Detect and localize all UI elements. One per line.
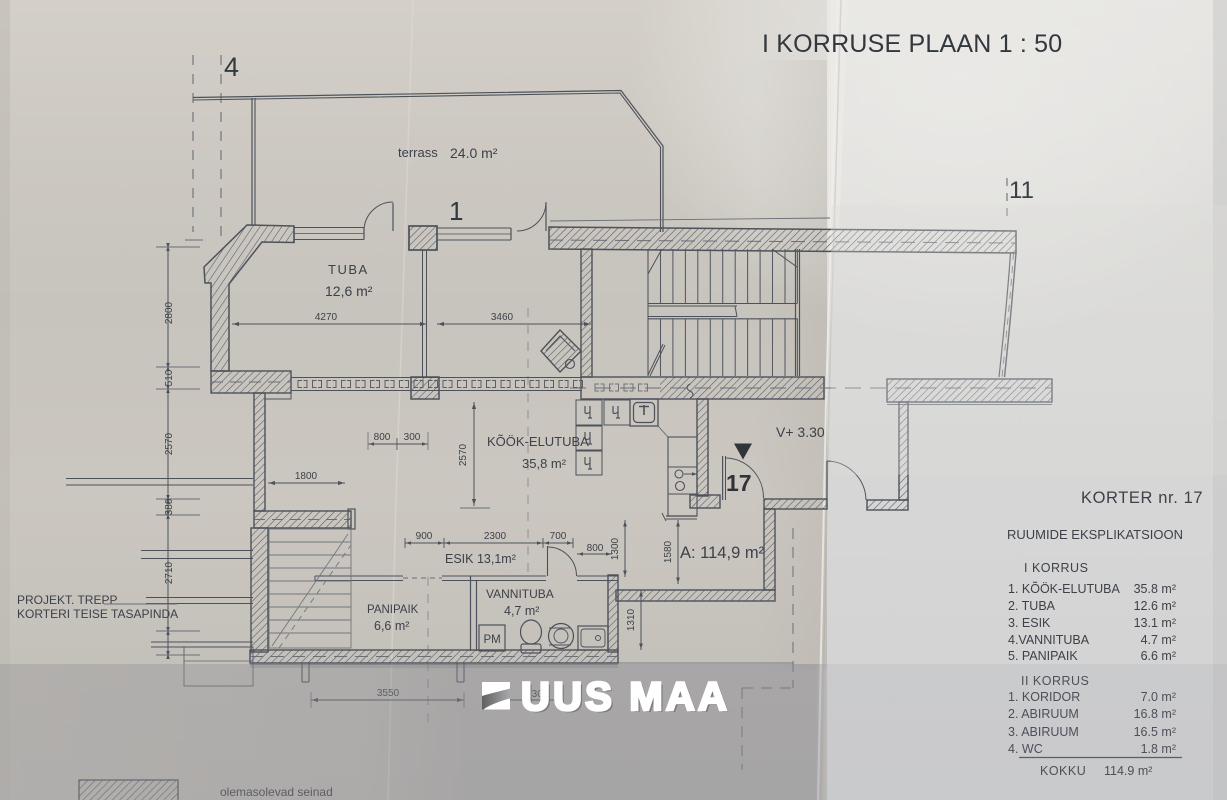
svg-text:A: 114,9 m²: A: 114,9 m² xyxy=(680,544,765,562)
svg-text:2. TUBA: 2. TUBA xyxy=(1008,599,1056,613)
svg-text:2710: 2710 xyxy=(164,561,175,584)
svg-text:380: 380 xyxy=(164,498,175,515)
svg-text:4: 4 xyxy=(224,52,239,82)
svg-text:PM: PM xyxy=(484,634,501,646)
svg-text:I KORRUS: I KORRUS xyxy=(1024,561,1088,575)
svg-text:V+ 3.30: V+ 3.30 xyxy=(776,424,825,440)
svg-text:1300: 1300 xyxy=(610,537,621,560)
svg-text:UUS MAA: UUS MAA xyxy=(521,675,730,719)
svg-text:35.8 m²: 35.8 m² xyxy=(1134,582,1176,596)
svg-text:800: 800 xyxy=(587,543,604,554)
svg-text:12.6 m²: 12.6 m² xyxy=(1134,599,1176,613)
svg-text:3460: 3460 xyxy=(491,312,514,323)
svg-text:2800: 2800 xyxy=(164,301,175,324)
svg-text:terrass: terrass xyxy=(398,145,438,160)
svg-text:VANNITUBA: VANNITUBA xyxy=(486,587,554,601)
svg-text:1800: 1800 xyxy=(295,471,318,482)
svg-text:4,7 m²: 4,7 m² xyxy=(504,604,539,618)
svg-text:RUUMIDE EKSPLIKATSIOON: RUUMIDE EKSPLIKATSIOON xyxy=(1007,527,1183,542)
svg-text:4.7 m²: 4.7 m² xyxy=(1141,633,1176,647)
svg-text:1580: 1580 xyxy=(663,540,674,563)
svg-text:700: 700 xyxy=(550,531,567,542)
svg-text:KORTER nr. 17: KORTER nr. 17 xyxy=(1081,489,1203,507)
svg-text:300: 300 xyxy=(404,432,421,443)
svg-text:3. ESIK: 3. ESIK xyxy=(1008,616,1051,630)
svg-text:35,8 m²: 35,8 m² xyxy=(522,456,567,471)
svg-text:800: 800 xyxy=(374,432,391,443)
svg-text:2570: 2570 xyxy=(458,443,469,466)
svg-text:5. PANIPAIK: 5. PANIPAIK xyxy=(1008,649,1078,663)
svg-text:KORTERI TEISE TASAPINDA: KORTERI TEISE TASAPINDA xyxy=(17,607,178,621)
svg-text:12,6 m²: 12,6 m² xyxy=(325,283,373,299)
svg-text:PROJEKT. TREPP: PROJEKT. TREPP xyxy=(17,593,117,607)
svg-text:900: 900 xyxy=(416,531,433,542)
svg-text:1310: 1310 xyxy=(626,608,637,631)
svg-text:4.VANNITUBA: 4.VANNITUBA xyxy=(1008,633,1090,647)
svg-text:4270: 4270 xyxy=(315,312,338,323)
svg-text:11: 11 xyxy=(1009,177,1034,204)
svg-text:I KORRUSE PLAAN 1 : 50: I KORRUSE PLAAN 1 : 50 xyxy=(762,30,1062,58)
svg-text:17: 17 xyxy=(726,470,752,496)
svg-text:ESIK 13,1m²: ESIK 13,1m² xyxy=(445,552,516,566)
svg-text:1: 1 xyxy=(449,196,463,226)
svg-text:PANIPAIK: PANIPAIK xyxy=(367,604,419,616)
svg-text:TUBA: TUBA xyxy=(328,262,369,277)
svg-text:KÕÖK-ELUTUBA: KÕÖK-ELUTUBA xyxy=(487,434,589,449)
svg-text:2300: 2300 xyxy=(484,531,507,542)
svg-text:13.1 m²: 13.1 m² xyxy=(1134,616,1176,630)
svg-text:24.0 m²: 24.0 m² xyxy=(450,145,498,161)
svg-text:2570: 2570 xyxy=(164,432,175,455)
svg-text:1. KÕÖK-ELUTUBA: 1. KÕÖK-ELUTUBA xyxy=(1008,581,1120,596)
svg-text:6.6 m²: 6.6 m² xyxy=(1141,649,1176,663)
svg-text:6,6 m²: 6,6 m² xyxy=(374,619,409,633)
svg-text:510: 510 xyxy=(164,369,175,386)
